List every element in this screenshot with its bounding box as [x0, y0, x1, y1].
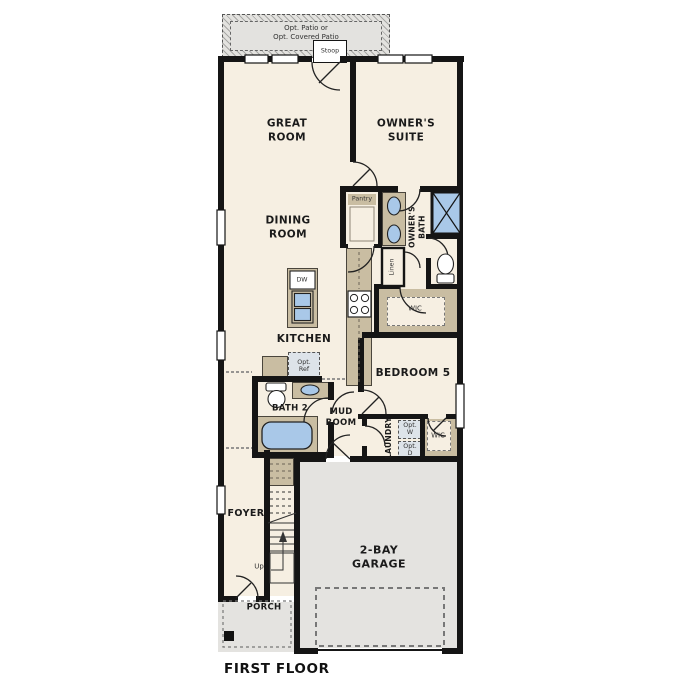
kitchen-label: KITCHEN [277, 333, 331, 347]
upper-flight-treads [270, 492, 294, 513]
window-left-2 [217, 331, 225, 360]
foyer-label: FOYER [228, 508, 265, 520]
window-bedroom5 [456, 384, 464, 428]
dishwasher-label: DW [296, 276, 307, 283]
closet-shelf-lines [270, 464, 292, 478]
stoop-label: Stoop [321, 47, 339, 54]
floor-plan: Opt. Patio orOpt. Covered Patio Stoop GR… [0, 0, 687, 687]
bath2-tub [262, 422, 312, 449]
porch-column [224, 631, 234, 641]
porch-label: PORCH [247, 602, 282, 613]
owners-bath-label: OWNER'SBATH [407, 206, 427, 248]
up-label: Up [254, 562, 264, 571]
owners-bath-sinks [388, 197, 401, 243]
linen-door-arc [404, 252, 420, 268]
window-great-room-2 [272, 55, 298, 63]
opt-patio-label: Opt. Patio orOpt. Covered Patio [273, 24, 339, 42]
garage-label: 2-BAYGARAGE [352, 544, 406, 573]
floor-title: FIRST FLOOR [224, 661, 330, 677]
pantry-door-arc [348, 246, 374, 272]
pantry-shelf [350, 207, 374, 241]
window-owners-suite-2 [405, 55, 432, 63]
bedroom5-label: BEDROOM 5 [376, 367, 451, 381]
owners-suite-label: OWNER'SSUITE [377, 117, 435, 144]
laundry-door-arc [365, 426, 385, 446]
opt-dryer-label: Opt.D [403, 443, 416, 457]
window-great-room-1 [245, 55, 268, 63]
stair-landing [270, 553, 294, 583]
stair-cut-line [268, 513, 296, 523]
window-left-1 [217, 210, 225, 245]
bedroom5-door-leaf [362, 397, 379, 414]
owners-suite-door-leaf [353, 169, 370, 186]
plan-linework [0, 0, 687, 687]
pantry-label: Pantry [352, 195, 372, 202]
wic2-door-leaf [433, 418, 446, 431]
great-room-label: GREATROOM [267, 117, 307, 144]
owners-toilet [437, 254, 454, 283]
dining-room-label: DININGROOM [265, 214, 310, 241]
garage-door-apron [316, 588, 444, 646]
back-door-leaf [319, 62, 340, 83]
wic2-label: WIC [431, 431, 445, 440]
window-owners-suite-1 [378, 55, 403, 63]
laundry-label: LAUNDRY [384, 417, 394, 459]
island-sink [292, 291, 313, 323]
mud-room-label: MUDROOM [326, 407, 357, 429]
linen-label: Linen [388, 258, 395, 275]
range [348, 291, 371, 317]
window-foyer [217, 486, 225, 514]
owners-wic-label: WIC [408, 304, 422, 313]
front-door-leaf [236, 583, 251, 598]
bath2-label: BATH 2 [272, 403, 308, 414]
stairs [268, 464, 296, 583]
opt-washer-label: Opt.W [403, 422, 416, 436]
garage-entry-door-leaf [332, 442, 350, 459]
shower [432, 192, 461, 234]
bath2-sink [301, 385, 319, 395]
opt-ref-label: Opt.Ref [297, 359, 310, 373]
